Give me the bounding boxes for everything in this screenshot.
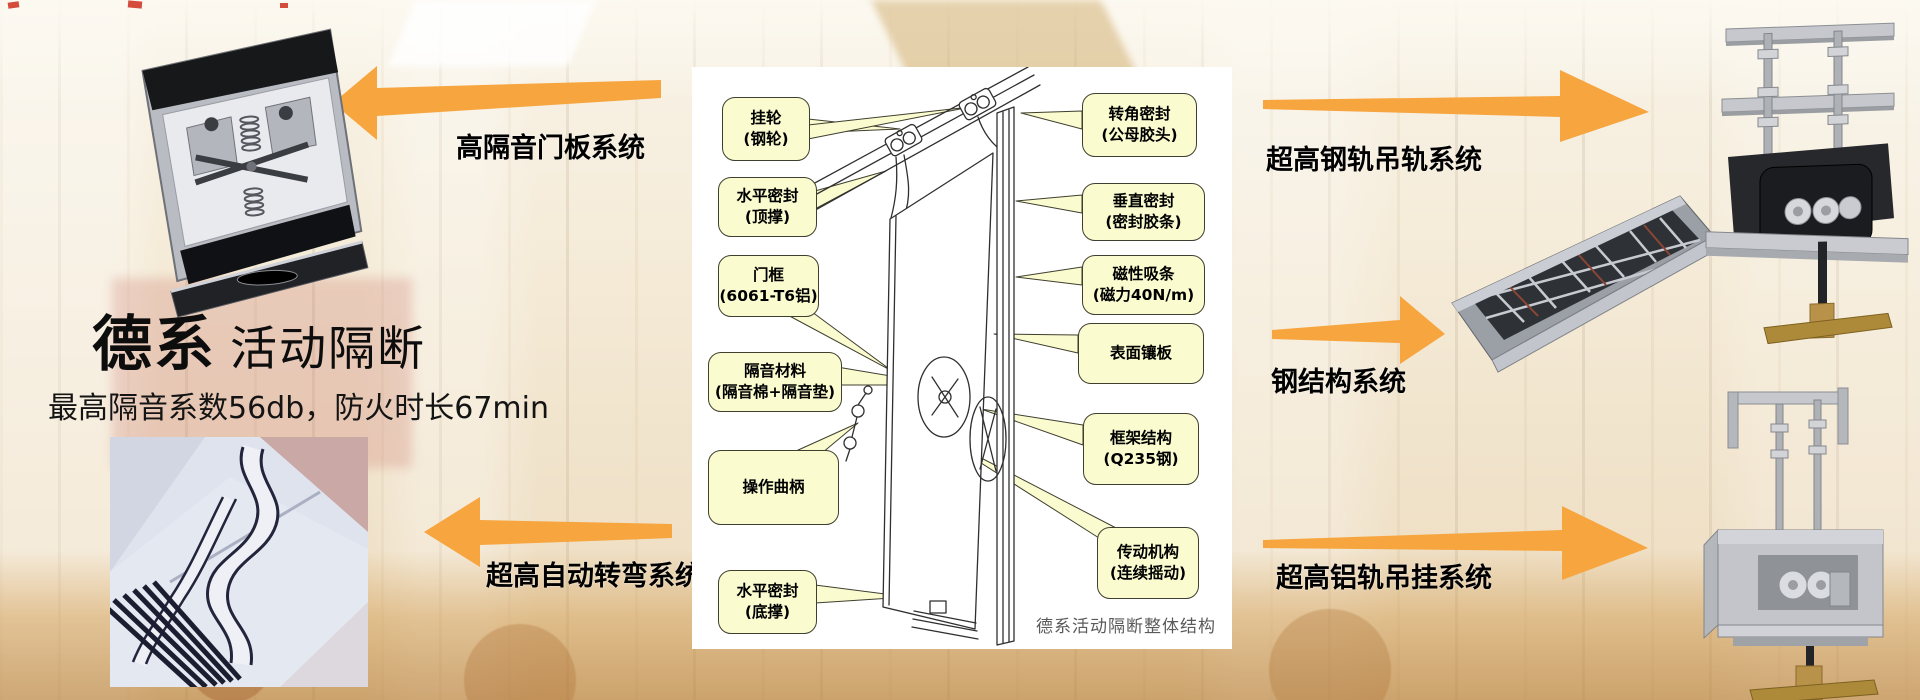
callout-text: 水平密封	[736, 186, 798, 207]
label-right-top-system: 超高钢轨吊轨系统	[1266, 138, 1482, 177]
label-left-top-system: 高隔音门板系统	[456, 126, 645, 165]
leader-frame-structure	[981, 409, 1083, 445]
callout-text: 挂轮	[750, 108, 781, 129]
callout-top-seal: 水平密封 (顶撑)	[718, 177, 817, 237]
background-skylight	[389, 0, 596, 66]
callout-text: (钢轮)	[743, 129, 788, 150]
aluminum-rail-hanger-photo	[1688, 380, 1918, 700]
leader-corner-seal	[1021, 111, 1082, 129]
leader-vertical-seal	[1016, 195, 1082, 213]
callout-vertical-seal: 垂直密封 (密封胶条)	[1082, 183, 1205, 241]
callout-text: 转角密封	[1108, 104, 1170, 125]
callout-door-frame: 门框 (6061-T6铝)	[718, 255, 819, 317]
label-right-bottom-system: 超高铝轨吊挂系统	[1276, 556, 1492, 595]
diagram-panel: 挂轮 (钢轮) 水平密封 (顶撑) 门框 (6061-T6铝) 隔音材料 (隔音…	[692, 67, 1232, 649]
callout-text: 隔音材料	[744, 361, 806, 382]
callout-text: 门框	[753, 265, 784, 286]
callout-hang-wheel: 挂轮 (钢轮)	[722, 97, 810, 161]
callout-text: 水平密封	[736, 581, 798, 602]
leader-magnetic-strip	[1016, 267, 1082, 285]
steel-rail-hanger-photo	[1698, 0, 1918, 350]
callout-text: (Q235钢)	[1103, 449, 1178, 470]
steel-structure-photo	[1442, 188, 1722, 388]
callout-text: (公母胶头)	[1101, 125, 1177, 146]
callout-text: (6061-T6铝)	[719, 286, 817, 307]
callout-text: 垂直密封	[1112, 191, 1174, 212]
callout-text: (连续摇动)	[1110, 563, 1186, 584]
callout-surface-panel: 表面镶板	[1078, 323, 1204, 384]
door-panel-front	[883, 153, 993, 629]
curved-track-system-photo	[110, 437, 368, 687]
callout-text: (密封胶条)	[1105, 212, 1181, 233]
slide: 德系活动隔断 最高隔音系数56db，防火时长67min 高隔音门板系统 超高自动…	[0, 0, 1920, 700]
callout-transmission: 传动机构 (连续摇动)	[1097, 527, 1199, 599]
page-title-light: 活动隔断	[230, 322, 426, 377]
callout-frame-structure: 框架结构 (Q235钢)	[1083, 413, 1199, 485]
callout-text: (隔音棉+隔音垫)	[715, 382, 835, 403]
diagram-caption: 德系活动隔断整体结构	[1036, 612, 1216, 637]
callout-crank: 操作曲柄	[708, 450, 839, 525]
label-right-middle-system: 钢结构系统	[1271, 360, 1406, 399]
page-title-bold: 德系	[92, 310, 216, 380]
callout-text: (底撑)	[745, 602, 790, 623]
callout-text: 表面镶板	[1110, 343, 1172, 364]
callout-corner-seal: 转角密封 (公母胶头)	[1082, 93, 1197, 157]
callout-sound-material: 隔音材料 (隔音棉+隔音垫)	[708, 352, 842, 412]
callout-text: 操作曲柄	[742, 477, 804, 498]
callout-magnetic-strip: 磁性吸条 (磁力40N/m)	[1082, 255, 1205, 315]
callout-text: 传动机构	[1117, 542, 1179, 563]
callout-text: 磁性吸条	[1112, 264, 1174, 285]
callout-text: (顶撑)	[745, 207, 790, 228]
callout-text: 框架结构	[1110, 428, 1172, 449]
trolley-icon	[958, 87, 998, 121]
label-left-bottom-system: 超高自动转弯系统	[486, 554, 702, 593]
door-panel-edge	[997, 107, 1014, 645]
page-subtitle: 最高隔音系数56db，防火时长67min	[48, 383, 549, 427]
callout-bottom-seal: 水平密封 (底撑)	[718, 570, 817, 634]
callout-text: (磁力40N/m)	[1093, 285, 1195, 306]
page-title: 德系活动隔断	[92, 296, 426, 383]
